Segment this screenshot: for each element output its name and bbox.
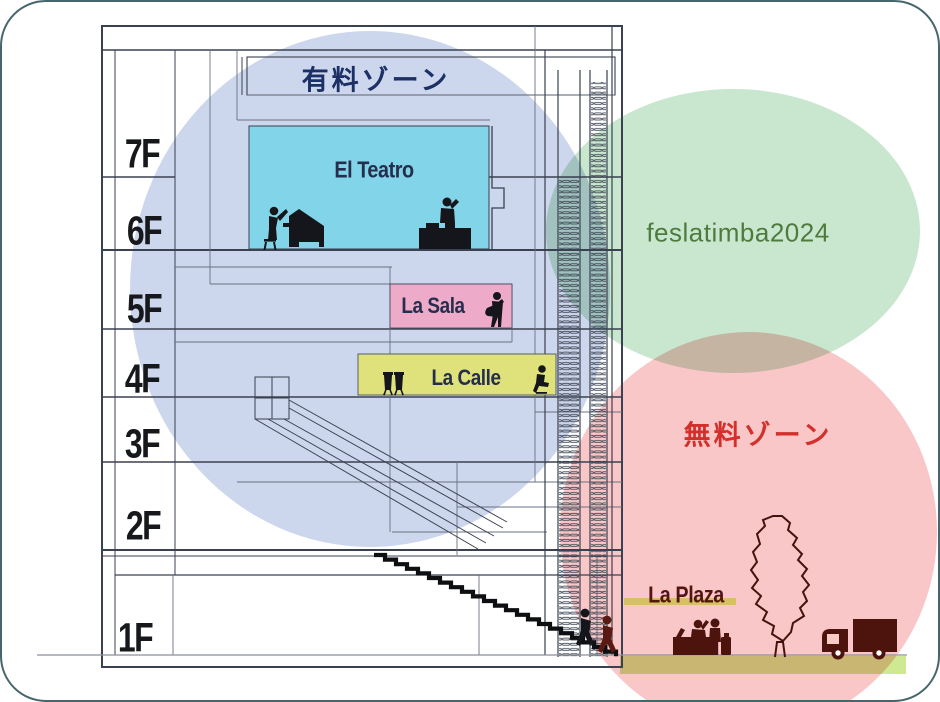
- escalator-icon: [255, 377, 507, 549]
- floor-label-3f: 3F: [125, 421, 159, 468]
- el-teatro-label: El Teatro: [334, 157, 413, 184]
- la-calle-label: La Calle: [431, 365, 500, 391]
- building-section-drawing: [2, 2, 940, 702]
- stair-hatch-left: [559, 177, 579, 657]
- free-zone-label: 無料ゾーン: [684, 414, 833, 453]
- floor-label-6f: 6F: [127, 208, 161, 255]
- slide-canvas: 7F 6F 5F 4F 3F 2F 1F 有料ゾーン feslatimba202…: [0, 0, 940, 702]
- floor-label-5f: 5F: [127, 286, 161, 333]
- floor-label-1f: 1F: [118, 615, 152, 662]
- suitcase-handle: [724, 633, 729, 637]
- truck-icon: [822, 619, 897, 660]
- floor-label-4f: 4F: [125, 356, 159, 403]
- floor-label-7f: 7F: [125, 131, 159, 178]
- floor-label-2f: 2F: [126, 503, 160, 550]
- la-sala-label: La Sala: [401, 293, 464, 319]
- event-zone-label: feslatimba2024: [646, 218, 829, 249]
- stair-hatch-right: [591, 82, 606, 657]
- tree-icon: [751, 516, 809, 657]
- building-structure: [102, 26, 622, 667]
- suitcase-icon: [721, 637, 731, 655]
- la-plaza-label: La Plaza: [648, 582, 724, 609]
- paid-zone-label: 有料ゾーン: [302, 59, 451, 98]
